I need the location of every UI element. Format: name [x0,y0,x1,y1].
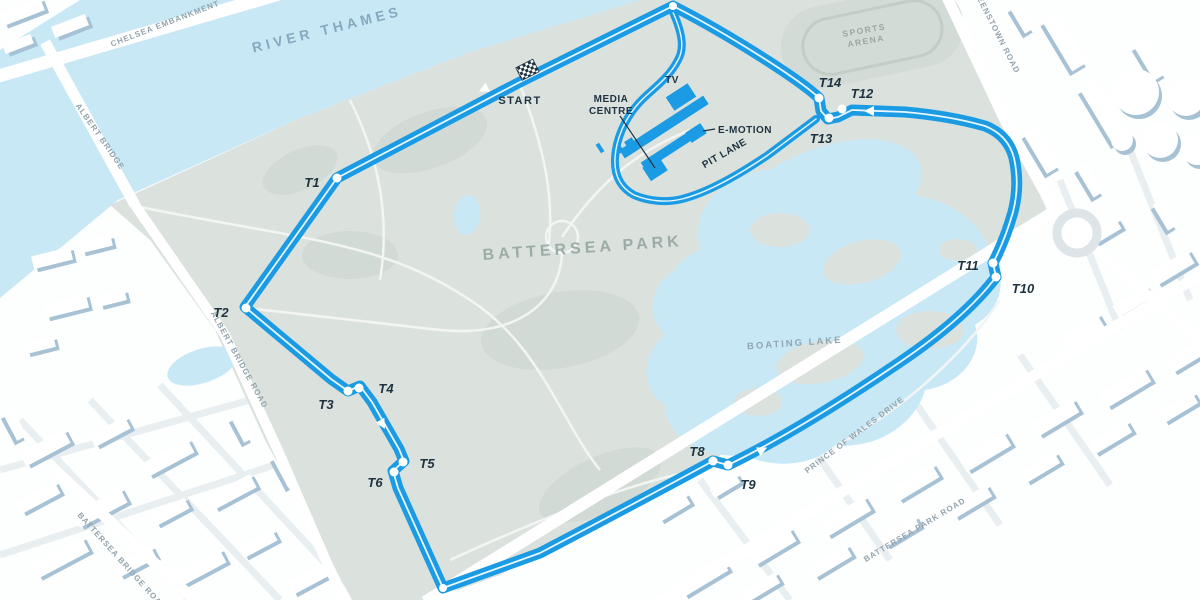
turn-dot-T2 [242,304,251,313]
gasholder [1113,69,1159,115]
emotion-label: E-MOTION [718,125,772,136]
turn-dot-T5 [399,458,408,467]
svg-text:CENTRE: CENTRE [589,106,633,117]
turn-dot-T8 [709,457,718,466]
map-canvas: T1T2T3T4T5T6T8T9T10T11T12T13T14 RIVER TH… [0,0,1200,600]
battersea-park-circuit-map: T1T2T3T4T5T6T8T9T10T11T12T13T14 RIVER TH… [0,0,1200,600]
turn-label-T13: T13 [810,131,833,146]
turn-label-T4: T4 [378,381,394,396]
turn-dot-T9 [724,461,733,470]
turn-label-T9: T9 [740,477,756,492]
roundabout [1057,213,1097,253]
turn-label-T8: T8 [689,444,705,459]
start-label: START [498,95,541,107]
turn-label-T3: T3 [318,397,334,412]
turn-dot-T1 [333,174,342,183]
turn-label-T5: T5 [419,456,435,471]
turn-dot-T6 [390,468,399,477]
turn-dot-T11 [989,259,998,268]
media-centre-label: MEDIA CENTRE [589,94,633,117]
turn-dot-T10 [992,273,1001,282]
turn-dot-T12 [838,105,847,114]
turn-label-T1: T1 [304,175,319,190]
turn-label-T6: T6 [367,475,383,490]
turn-label-T10: T10 [1012,281,1035,296]
gasholder [1111,129,1133,151]
svg-text:MEDIA: MEDIA [594,94,629,105]
turn-label-T11: T11 [957,258,978,273]
turn-dot-T13 [825,114,834,123]
turn-label-T12: T12 [851,86,874,101]
track-corner-dot [669,2,677,10]
track-corner-dot [439,584,447,592]
turn-dot-T4 [355,384,364,393]
turn-dot-T3 [344,387,353,396]
gasholder [1142,122,1178,158]
turn-dot-T14 [815,94,824,103]
turn-label-T14: T14 [819,75,842,90]
tv-label: TV [665,75,679,86]
